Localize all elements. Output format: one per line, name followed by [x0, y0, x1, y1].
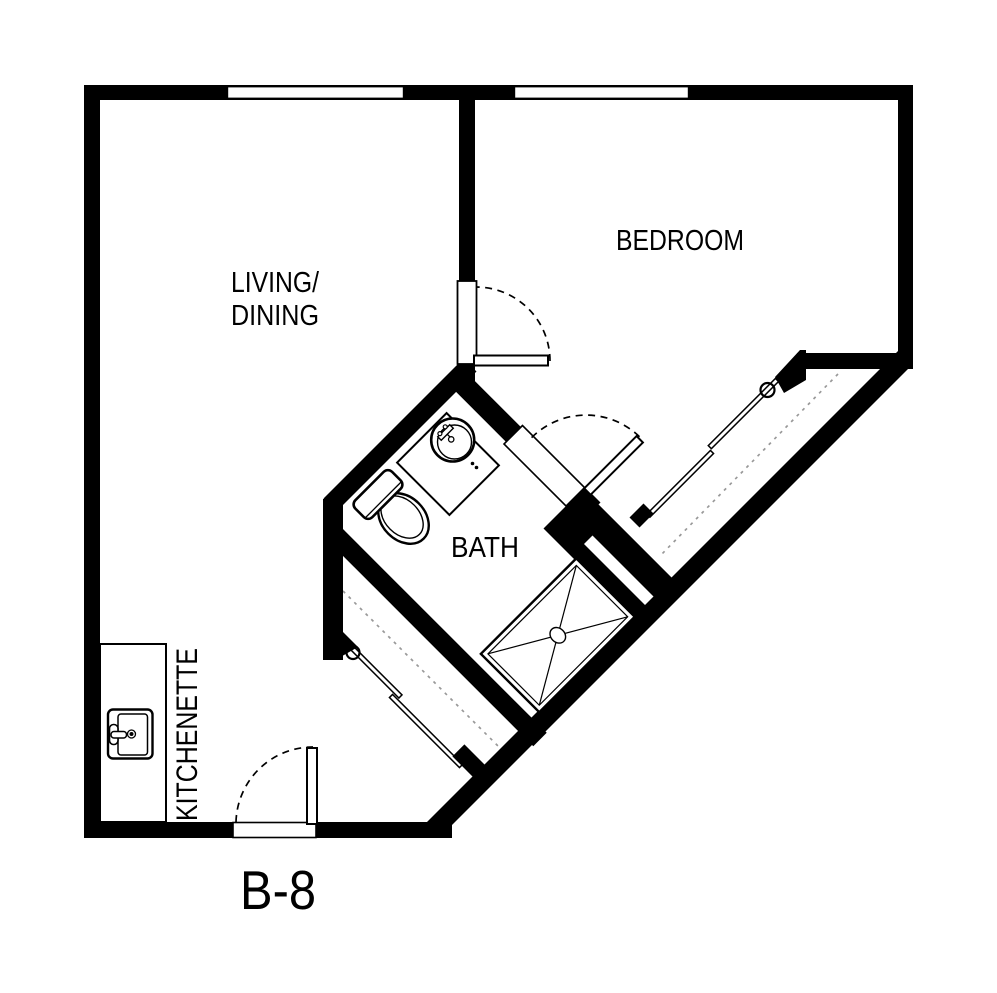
svg-text:BEDROOM: BEDROOM	[616, 225, 744, 257]
svg-text:BATH: BATH	[451, 532, 519, 564]
svg-text:DINING: DINING	[231, 300, 319, 332]
svg-text:LIVING/: LIVING/	[231, 267, 319, 299]
svg-text:B-8: B-8	[240, 859, 316, 921]
svg-text:KITCHENETTE: KITCHENETTE	[171, 648, 204, 821]
